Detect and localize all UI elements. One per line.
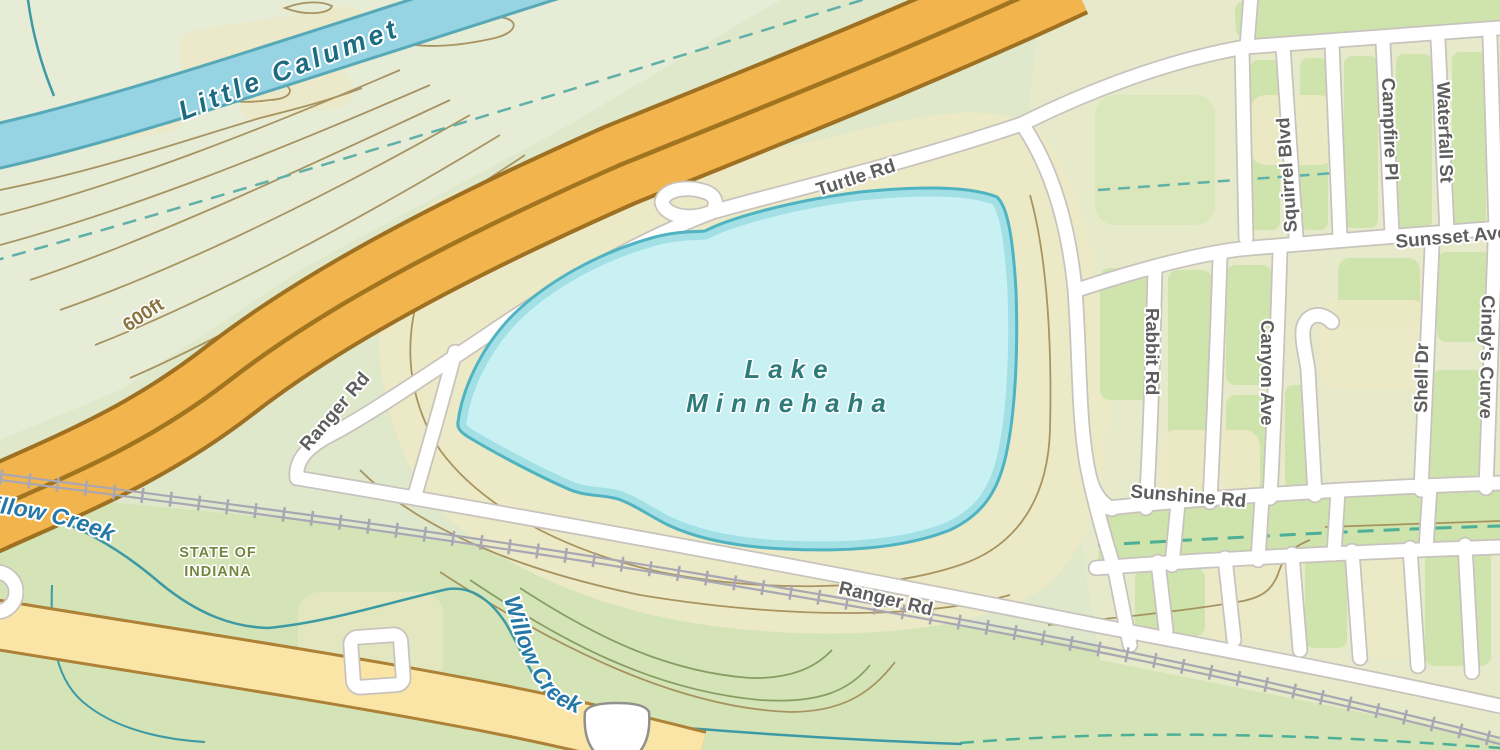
- map-canvas[interactable]: 33 Little Calumet 600ft Turtle Rd Ranger…: [0, 0, 1500, 750]
- label-lake-line1: Lake: [744, 354, 835, 384]
- us-route-shield-icon: [585, 703, 650, 750]
- label-indiana: INDIANA: [184, 564, 251, 580]
- label-rabbit-rd: Rabbit Rd: [1142, 308, 1163, 395]
- route-shield: 33: [585, 703, 650, 750]
- map-svg: 33 Little Calumet 600ft Turtle Rd Ranger…: [0, 0, 1500, 750]
- label-cindys-curve: Cindy's Curve: [1476, 295, 1499, 419]
- label-shell-dr: Shell Dr: [1410, 343, 1432, 413]
- label-state-of: STATE OF: [179, 545, 257, 561]
- label-waterfall-st: Waterfall St: [1433, 81, 1458, 183]
- label-canyon-ave: Canyon Ave: [1257, 320, 1278, 426]
- label-lake-line2: Minnehaha: [686, 388, 894, 418]
- label-campfire-pl: Campfire Pl: [1378, 77, 1403, 180]
